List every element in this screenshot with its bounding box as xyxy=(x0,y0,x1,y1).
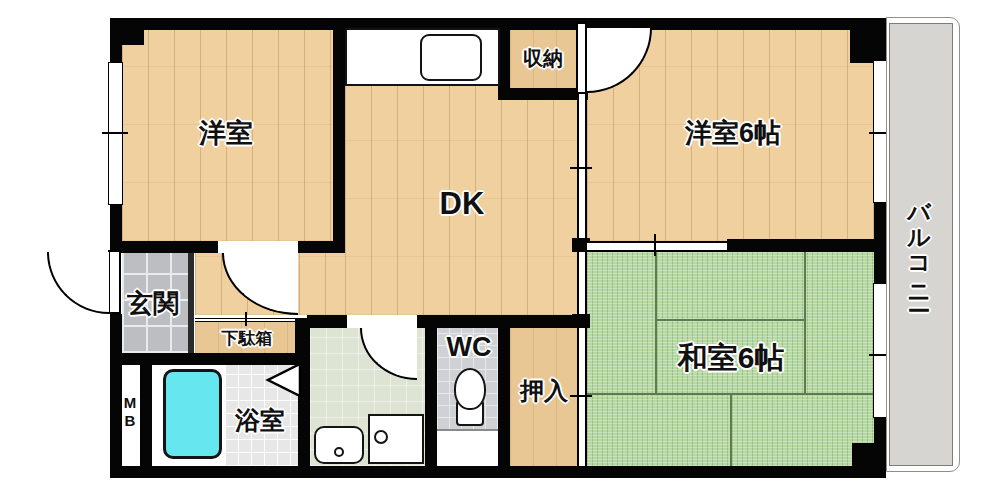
wall-washitsu-top xyxy=(727,239,874,252)
room-label-washitsu6: 和室6帖 xyxy=(678,338,785,379)
entry-door-panel xyxy=(108,250,121,314)
room-label-yokushitsu: 浴室 xyxy=(235,404,285,437)
room-label-genkan: 玄関 xyxy=(127,286,179,321)
wall-mb-right xyxy=(140,358,152,466)
partition-tick xyxy=(570,395,592,397)
wall-wc-top xyxy=(417,315,577,328)
bathtub xyxy=(163,369,222,459)
room-label-getabako: 下駄箱 xyxy=(222,327,273,350)
pillar-top-left xyxy=(110,18,144,45)
washing-machine-drain-icon xyxy=(374,430,388,444)
wall-bottom xyxy=(110,466,886,478)
room-label-shuno: 収納 xyxy=(523,45,563,72)
tatami-line xyxy=(730,395,732,466)
wall-shuno-bottom xyxy=(498,88,588,100)
wall-left xyxy=(110,314,122,466)
wc-floor-divider xyxy=(437,429,498,431)
room-label-yoshitsu6: 洋室6帖 xyxy=(685,115,781,151)
yoshitsu6-door-panel xyxy=(576,22,587,94)
washbasin-icon xyxy=(314,426,364,464)
pillar-bottom-right xyxy=(852,443,886,478)
partition-dk-yoshitsu6 xyxy=(577,92,587,238)
room-label-wc: WC xyxy=(447,332,492,363)
getabako-tick xyxy=(245,312,247,326)
tatami-line xyxy=(656,319,805,321)
wall-right xyxy=(874,203,886,283)
floorplan: 洋室 DK 洋室6帖 和室6帖 収納 玄関 下駄箱 MB 浴室 WC 押入 バル… xyxy=(0,0,1000,492)
room-label-yoshitsu: 洋室 xyxy=(199,115,253,151)
room-label-mb: MB xyxy=(122,394,139,430)
wall-wc-left xyxy=(425,315,437,466)
partition-dk-washitsu xyxy=(577,252,587,314)
kitchen-sink-icon xyxy=(420,34,482,81)
wall-wc-right xyxy=(498,328,510,466)
genkan-step-edge xyxy=(188,253,194,353)
room-label-oshiire: 押入 xyxy=(520,375,568,407)
wall-washroom-top xyxy=(307,315,347,328)
fusuma-yoshitsu6-washitsu xyxy=(587,241,727,252)
entry-door-swing-arc xyxy=(47,252,109,314)
window-washitsu-balcony xyxy=(873,283,887,418)
room-label-dk: DK xyxy=(440,186,485,222)
tatami-line xyxy=(804,252,806,394)
wall-yoshitsu-bottom xyxy=(110,241,218,253)
washbasin-drain-icon xyxy=(334,447,344,457)
wall-yoshitsu-bottom xyxy=(298,241,345,253)
wc-door-area xyxy=(437,430,498,466)
window-tick xyxy=(102,132,128,134)
wall-yoshitsu-right xyxy=(333,18,345,248)
pillar-top-right xyxy=(850,18,886,63)
toilet-bowl-icon xyxy=(454,368,486,410)
partition-oshiire-washitsu xyxy=(577,328,587,466)
partition-tick xyxy=(570,167,592,169)
yoshitsu-door-opening xyxy=(218,243,298,251)
bath-folding-door-icon xyxy=(264,362,302,398)
washroom-door-opening xyxy=(347,317,417,326)
tatami-line xyxy=(655,252,657,394)
room-label-balcony: バルコニー xyxy=(905,186,936,301)
fusuma-tick xyxy=(654,234,656,256)
